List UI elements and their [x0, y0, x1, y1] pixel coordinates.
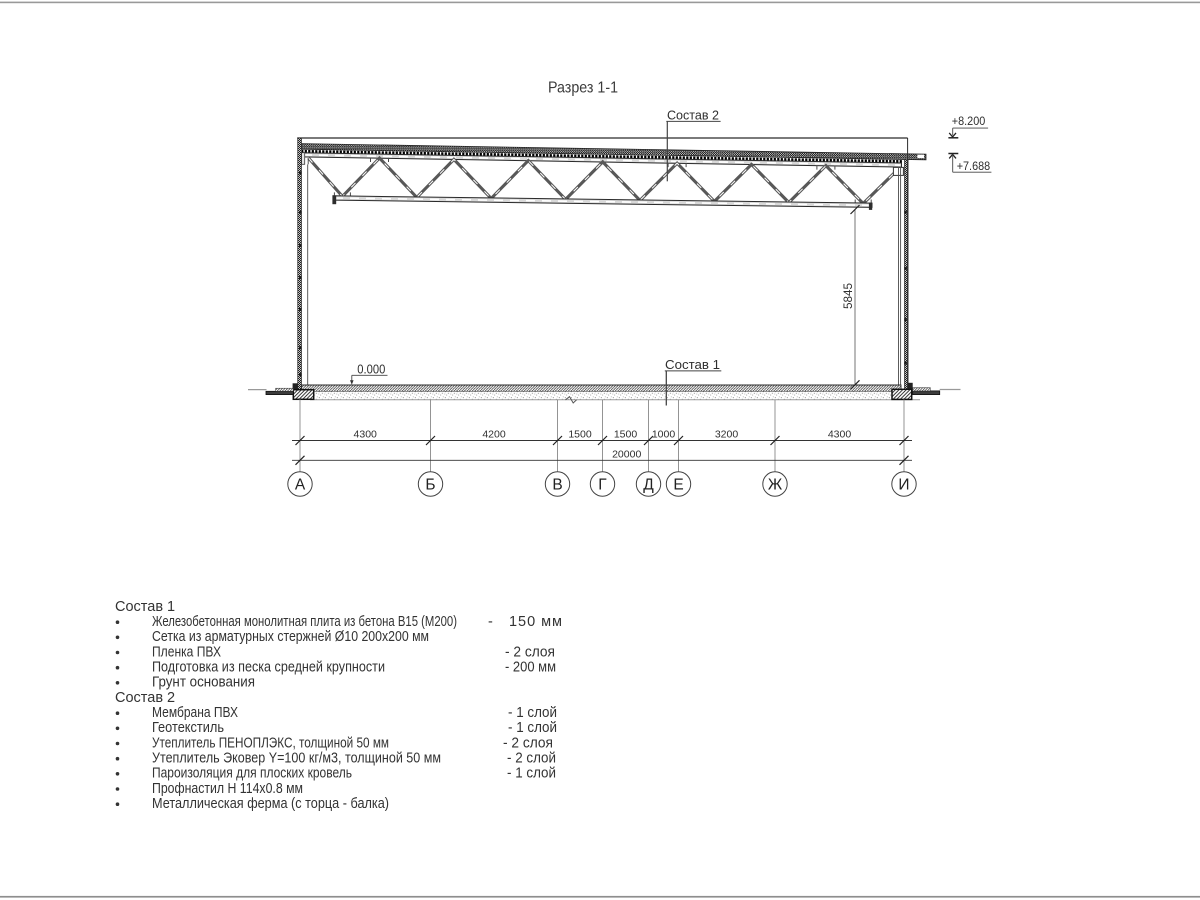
svg-text:И: И [898, 477, 909, 494]
svg-text:4300: 4300 [828, 429, 852, 441]
svg-text:1500: 1500 [614, 429, 638, 441]
svg-text:5845: 5845 [843, 283, 855, 309]
svg-text:Утеплитель Эковер Y=100 кг/м3,: Утеплитель Эковер Y=100 кг/м3, толщиной … [152, 751, 441, 767]
svg-text:Разрез 1-1: Разрез 1-1 [548, 80, 618, 97]
svg-text:Пароизоляция для плоских крове: Пароизоляция для плоских кровель [152, 766, 352, 782]
svg-text:Д: Д [643, 477, 654, 494]
svg-text:- 1 слой: - 1 слой [508, 720, 557, 736]
svg-text:В: В [552, 477, 562, 494]
svg-text:- 2 слой: - 2 слой [507, 751, 556, 767]
svg-text:150 мм: 150 мм [509, 614, 562, 630]
svg-text:Геотекстиль: Геотекстиль [152, 720, 224, 736]
svg-text:Г: Г [598, 477, 607, 494]
svg-text:0.000: 0.000 [357, 363, 385, 377]
svg-text:Состав 1: Состав 1 [115, 599, 175, 615]
svg-text:+7.688: +7.688 [957, 159, 991, 173]
svg-text:Мембрана ПВХ: Мембрана ПВХ [152, 705, 238, 721]
svg-text:Профнастил Н 114х0.8 мм: Профнастил Н 114х0.8 мм [152, 781, 303, 797]
svg-text:- 200 мм: - 200 мм [505, 660, 556, 676]
svg-text:Е: Е [673, 477, 683, 494]
svg-text:- 1 слой: - 1 слой [507, 766, 556, 782]
svg-text:+8.200: +8.200 [952, 114, 986, 128]
svg-text:Ж: Ж [768, 477, 783, 494]
svg-text:Пленка ПВХ: Пленка ПВХ [152, 644, 221, 660]
svg-text:А: А [295, 477, 306, 494]
svg-text:Состав 2: Состав 2 [115, 690, 175, 706]
svg-text:Грунт основания: Грунт основания [152, 675, 255, 691]
svg-text:-: - [488, 614, 493, 630]
svg-text:- 2 слоя: - 2 слоя [505, 644, 555, 660]
svg-text:1000: 1000 [652, 429, 676, 441]
svg-text:Подготовка из песка средней кр: Подготовка из песка средней крупности [152, 660, 385, 676]
svg-text:Состав 2: Состав 2 [667, 107, 719, 122]
svg-text:Металлическая ферма (с торца -: Металлическая ферма (с торца - балка) [152, 796, 389, 812]
svg-text:3200: 3200 [715, 429, 739, 441]
svg-text:4300: 4300 [354, 429, 378, 441]
svg-text:- 2 слоя: - 2 слоя [503, 735, 553, 751]
svg-text:Железобетонная монолитная плит: Железобетонная монолитная плита из бетон… [152, 614, 457, 630]
svg-text:Б: Б [425, 477, 435, 494]
svg-text:Сетка из арматурных стержней Ø: Сетка из арматурных стержней Ø10 200х200… [152, 629, 429, 645]
svg-text:Утеплитель ПЕНОПЛЭКС, толщиной: Утеплитель ПЕНОПЛЭКС, толщиной 50 мм [152, 735, 389, 751]
svg-text:- 1 слой: - 1 слой [508, 705, 557, 721]
svg-text:Состав 1: Состав 1 [665, 357, 720, 372]
svg-text:1500: 1500 [568, 429, 592, 441]
svg-text:4200: 4200 [482, 429, 506, 441]
svg-text:20000: 20000 [612, 448, 641, 460]
